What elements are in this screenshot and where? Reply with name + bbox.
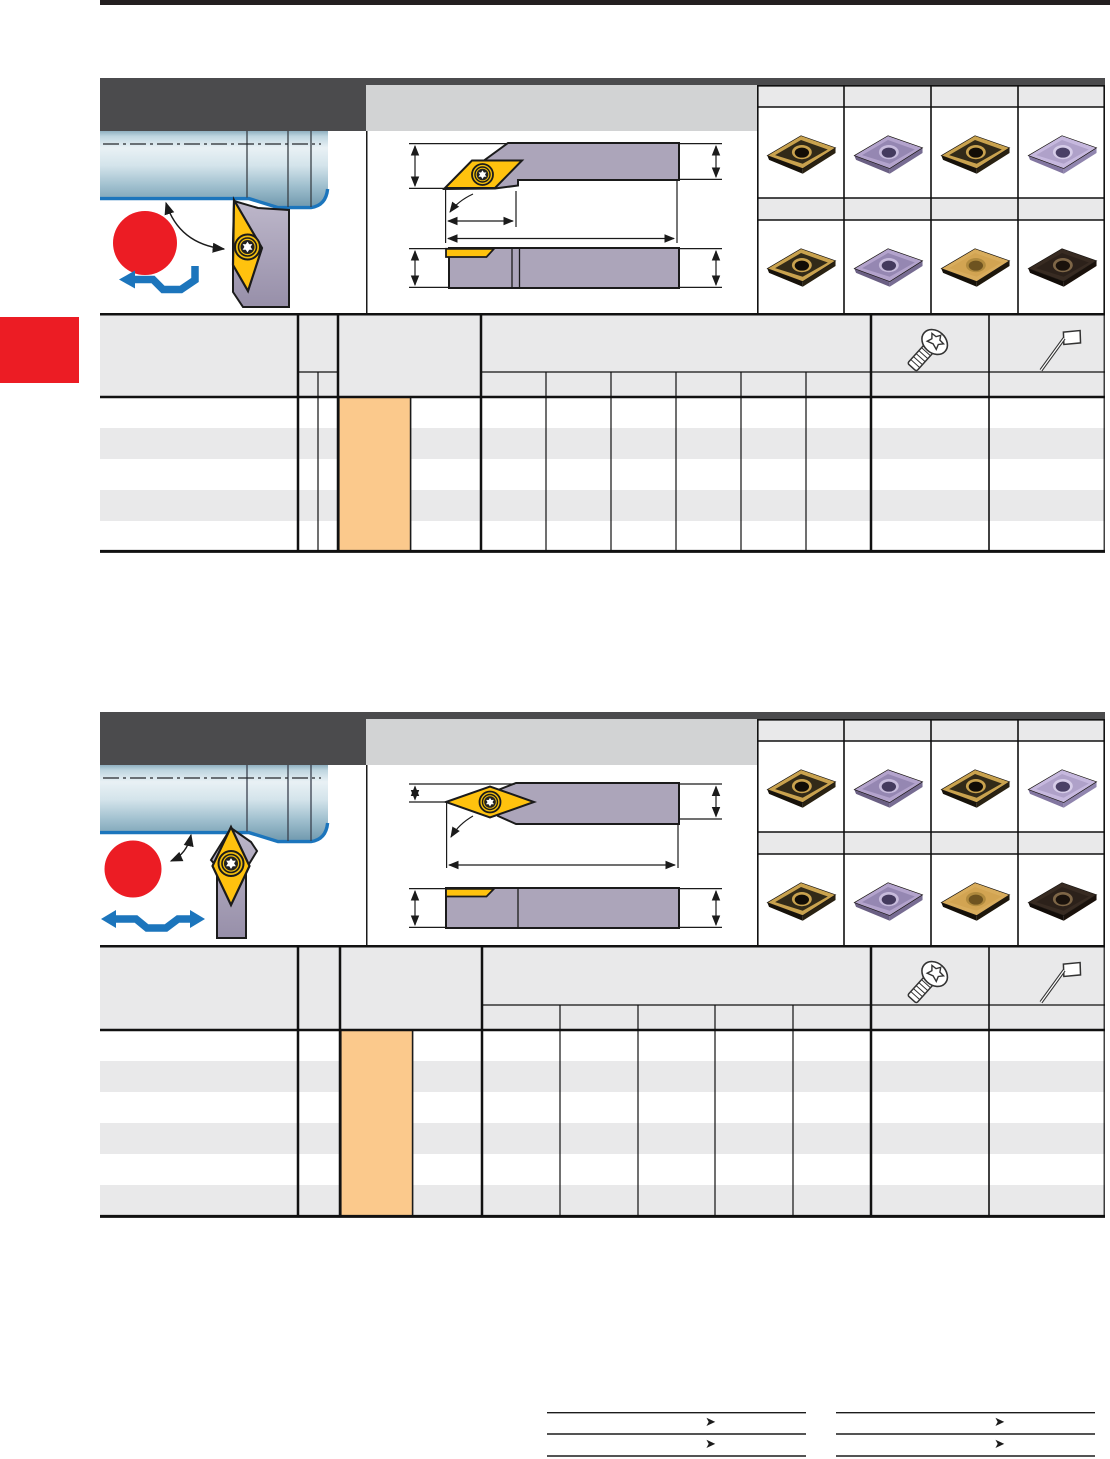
insert-photo-purple-light <box>1024 760 1100 814</box>
insert-photo-gold-black <box>763 239 839 293</box>
arrow-right-icon: ➤ <box>994 1438 1005 1451</box>
lead-angle-arc <box>171 835 191 861</box>
insert-photo-purple <box>850 873 926 927</box>
section1-header-rule <box>366 78 1105 85</box>
section1-dimension-drawing <box>366 131 757 313</box>
workpiece-drawing <box>100 765 328 842</box>
red-marker-circle <box>105 841 162 898</box>
section1-header-band <box>100 78 366 131</box>
section2-dimension-drawing <box>366 765 757 945</box>
row-stripe <box>100 428 1105 459</box>
section1-drawing-caption-strip <box>366 85 757 131</box>
side-view <box>409 143 722 243</box>
insert-photo-purple <box>850 760 926 814</box>
insert-photo-gold-black <box>937 760 1013 814</box>
top-view <box>409 248 722 288</box>
table-header-bg <box>100 313 1105 397</box>
insert-photo-gold-black <box>763 126 839 180</box>
red-marker-circle <box>113 211 177 275</box>
torx-screw-drawing <box>219 851 244 876</box>
footer-reference-table-right: ➤ ➤ <box>836 1412 1095 1458</box>
highlight-column <box>341 1030 413 1216</box>
side-view <box>409 783 722 868</box>
insert-photo-purple <box>850 126 926 180</box>
insert-photo-dark-brown <box>1024 239 1100 293</box>
row-stripe <box>100 490 1105 521</box>
insert-top <box>446 249 494 257</box>
section2-application-diagram <box>100 765 366 945</box>
section2-table <box>100 945 1105 1218</box>
insert-photo-gold <box>937 873 1013 927</box>
section1-table <box>100 313 1105 553</box>
section2-header-rule <box>366 712 1105 719</box>
insert-top <box>446 889 494 897</box>
insert-photo-dark-brown <box>1024 873 1100 927</box>
workpiece-drawing <box>100 131 328 208</box>
insert-photo-gold <box>937 239 1013 293</box>
top-view <box>409 888 722 928</box>
insert-photo-gold-black <box>763 760 839 814</box>
section2-header-band <box>100 712 366 765</box>
catalog-page: ➤ ➤ ➤ ➤ <box>0 0 1110 1459</box>
section2-insert-photo-grid <box>757 719 1105 945</box>
footer-reference-table-left: ➤ ➤ <box>547 1412 806 1458</box>
highlight-column <box>339 397 411 551</box>
row-stripe <box>100 1061 1105 1092</box>
arrow-right-icon: ➤ <box>705 1438 716 1451</box>
arrow-right-icon: ➤ <box>994 1416 1005 1429</box>
table-header-bg <box>100 945 1105 1030</box>
feed-direction-arrow-both <box>101 910 205 928</box>
insert-photo-gold-black <box>763 873 839 927</box>
arrow-right-icon: ➤ <box>705 1416 716 1429</box>
row-stripe <box>100 1185 1105 1216</box>
insert-photo-purple-light <box>1024 126 1100 180</box>
section1-insert-photo-grid <box>757 85 1105 313</box>
torx-screw-drawing <box>235 235 260 260</box>
row-stripe <box>100 1123 1105 1154</box>
insert-photo-purple <box>850 239 926 293</box>
top-rule <box>100 0 1110 5</box>
section2-drawing-caption-strip <box>366 719 757 765</box>
page-edge-tab <box>0 317 79 383</box>
insert-photo-gold-black <box>937 126 1013 180</box>
section1-application-diagram <box>100 131 366 313</box>
